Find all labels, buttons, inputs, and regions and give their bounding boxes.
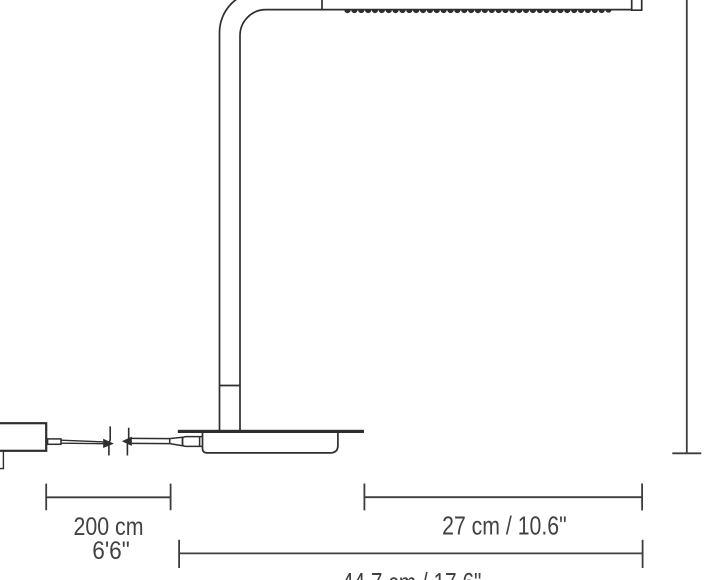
svg-text:44.7 cm / 17.6": 44.7 cm / 17.6" xyxy=(342,567,482,580)
svg-text:27 cm / 10.6": 27 cm / 10.6" xyxy=(442,511,567,541)
svg-text:6'6": 6'6" xyxy=(92,537,130,565)
